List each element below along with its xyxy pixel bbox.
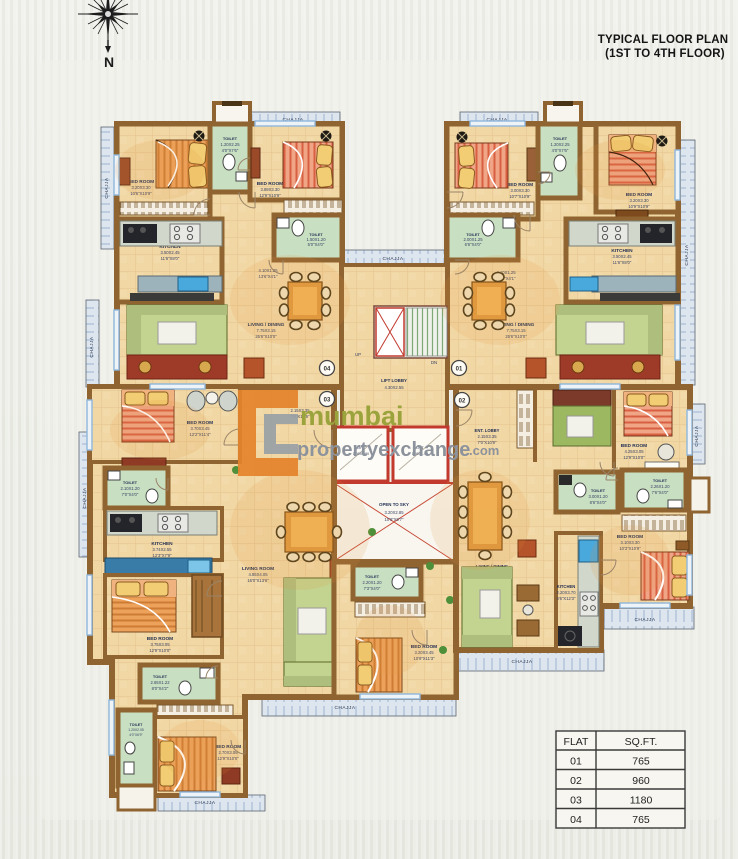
svg-text:mumbai: mumbai	[300, 401, 404, 431]
svg-text:CHAJJA: CHAJJA	[89, 336, 95, 357]
svg-text:TOILET: TOILET	[130, 723, 144, 727]
svg-text:CHAJJA: CHAJJA	[511, 659, 532, 665]
svg-text:propertyexchange: propertyexchange	[297, 439, 470, 461]
svg-text:10'7"X10'9": 10'7"X10'9"	[509, 194, 531, 199]
svg-text:CHAJJA: CHAJJA	[104, 177, 110, 198]
svg-text:10'9"X10'9": 10'9"X10'9"	[628, 204, 650, 209]
svg-text:3.00X3.30: 3.00X3.30	[510, 188, 530, 193]
svg-text:765: 765	[632, 756, 650, 768]
svg-text:CHAJJA: CHAJJA	[694, 425, 700, 446]
svg-text:1180: 1180	[630, 795, 653, 807]
svg-text:2.15X3.35: 2.15X3.35	[477, 434, 497, 439]
svg-text:1.20X2.25: 1.20X2.25	[220, 142, 240, 147]
svg-text:LIFT LOBBY: LIFT LOBBY	[381, 378, 407, 383]
svg-text:FLAT: FLAT	[564, 736, 589, 748]
svg-text:11'6"X8'0": 11'6"X8'0"	[161, 256, 180, 261]
svg-text:6'6"X12'3": 6'6"X12'3"	[556, 596, 576, 601]
svg-text:10'9"X9'7": 10'9"X9'7"	[384, 517, 404, 522]
svg-text:CHAJJA: CHAJJA	[194, 800, 215, 806]
svg-text:2.10X1.20: 2.10X1.20	[120, 486, 140, 491]
svg-text:TOILET: TOILET	[553, 136, 568, 141]
svg-text:OPEN TO SKY: OPEN TO SKY	[379, 502, 409, 507]
svg-text:TOILET: TOILET	[653, 478, 668, 483]
svg-text:3.20X2.85: 3.20X2.85	[384, 510, 404, 515]
svg-text:TOILET: TOILET	[223, 136, 238, 141]
svg-text:11'6"X8'0": 11'6"X8'0"	[613, 260, 632, 265]
svg-text:4'0"X6'9": 4'0"X6'9"	[129, 733, 143, 737]
svg-text:TOILET: TOILET	[365, 574, 380, 579]
svg-text:DN: DN	[431, 360, 437, 365]
svg-text:2.65X1.22: 2.65X1.22	[150, 680, 170, 685]
svg-text:04: 04	[324, 367, 331, 373]
svg-text:2.26X1.20: 2.26X1.20	[650, 484, 670, 489]
svg-text:7'6"X4'0": 7'6"X4'0"	[652, 490, 669, 495]
svg-text:CHAJJA: CHAJJA	[334, 705, 355, 711]
svg-text:12'9"X10'0": 12'9"X10'0"	[149, 648, 171, 653]
svg-text:01: 01	[570, 756, 582, 768]
svg-text:02: 02	[459, 399, 466, 405]
svg-text:4.25X3.05: 4.25X3.05	[624, 449, 644, 454]
svg-text:3.74X2.55: 3.74X2.55	[152, 547, 172, 552]
svg-text:TYPICAL FLOOR PLAN: TYPICAL FLOOR PLAN	[598, 34, 729, 46]
svg-text:5'0"X4'0": 5'0"X4'0"	[308, 242, 325, 247]
svg-text:3.89X3.30: 3.89X3.30	[260, 187, 280, 192]
svg-text:3.00X1.20: 3.00X1.20	[588, 494, 608, 499]
svg-text:04: 04	[570, 814, 582, 826]
svg-text:01: 01	[456, 367, 463, 373]
svg-text:SQ.FT.: SQ.FT.	[625, 736, 658, 748]
svg-text:KITCHEN: KITCHEN	[557, 584, 576, 589]
svg-text:765: 765	[632, 814, 650, 826]
svg-text:N: N	[104, 54, 114, 70]
svg-text:TOILET: TOILET	[591, 488, 606, 493]
svg-text:TOILET: TOILET	[123, 480, 138, 485]
svg-text:(1ST TO 4TH FLOOR): (1ST TO 4TH FLOOR)	[605, 48, 725, 60]
svg-text:8'0"X4'2": 8'0"X4'2"	[152, 686, 169, 691]
svg-text:8'6"X4'0": 8'6"X4'0"	[590, 500, 607, 505]
svg-text:CHAJJA: CHAJJA	[382, 256, 403, 262]
svg-text:4'0"X7'6": 4'0"X7'6"	[222, 148, 239, 153]
svg-text:960: 960	[632, 775, 650, 787]
svg-text:3.75X3.05: 3.75X3.05	[150, 642, 170, 647]
svg-text:1.20X2.05: 1.20X2.05	[128, 728, 144, 732]
svg-text:.com: .com	[469, 443, 499, 458]
svg-text:12'3"X7'9": 12'3"X7'9"	[152, 553, 172, 558]
svg-text:7'0"X4'0": 7'0"X4'0"	[122, 492, 139, 497]
svg-text:4.30X2.55: 4.30X2.55	[384, 385, 404, 390]
svg-text:6'6"X4'0": 6'6"X4'0"	[465, 242, 482, 247]
svg-text:2.20X1.20: 2.20X1.20	[362, 580, 382, 585]
svg-text:7'3"X4'0": 7'3"X4'0"	[364, 586, 381, 591]
svg-text:03: 03	[570, 795, 582, 807]
svg-text:12'9"X10'0": 12'9"X10'0"	[623, 455, 645, 460]
svg-text:TOILET: TOILET	[153, 674, 168, 679]
svg-text:1.20X2.25: 1.20X2.25	[550, 142, 570, 147]
svg-text:4'0"X7'6": 4'0"X7'6"	[552, 148, 569, 153]
svg-text:02: 02	[570, 775, 582, 787]
svg-text:CHAJJA: CHAJJA	[684, 244, 690, 265]
svg-text:ENT. LOBBY: ENT. LOBBY	[475, 428, 500, 433]
svg-text:UP: UP	[355, 352, 361, 357]
svg-text:CHAJJA: CHAJJA	[634, 617, 655, 623]
svg-text:2.20X3.70: 2.20X3.70	[556, 590, 576, 595]
svg-text:3.50X2.45: 3.50X2.45	[160, 250, 180, 255]
svg-text:12'9"X10'9": 12'9"X10'9"	[259, 193, 281, 198]
svg-text:3.50X2.45: 3.50X2.45	[612, 254, 632, 259]
